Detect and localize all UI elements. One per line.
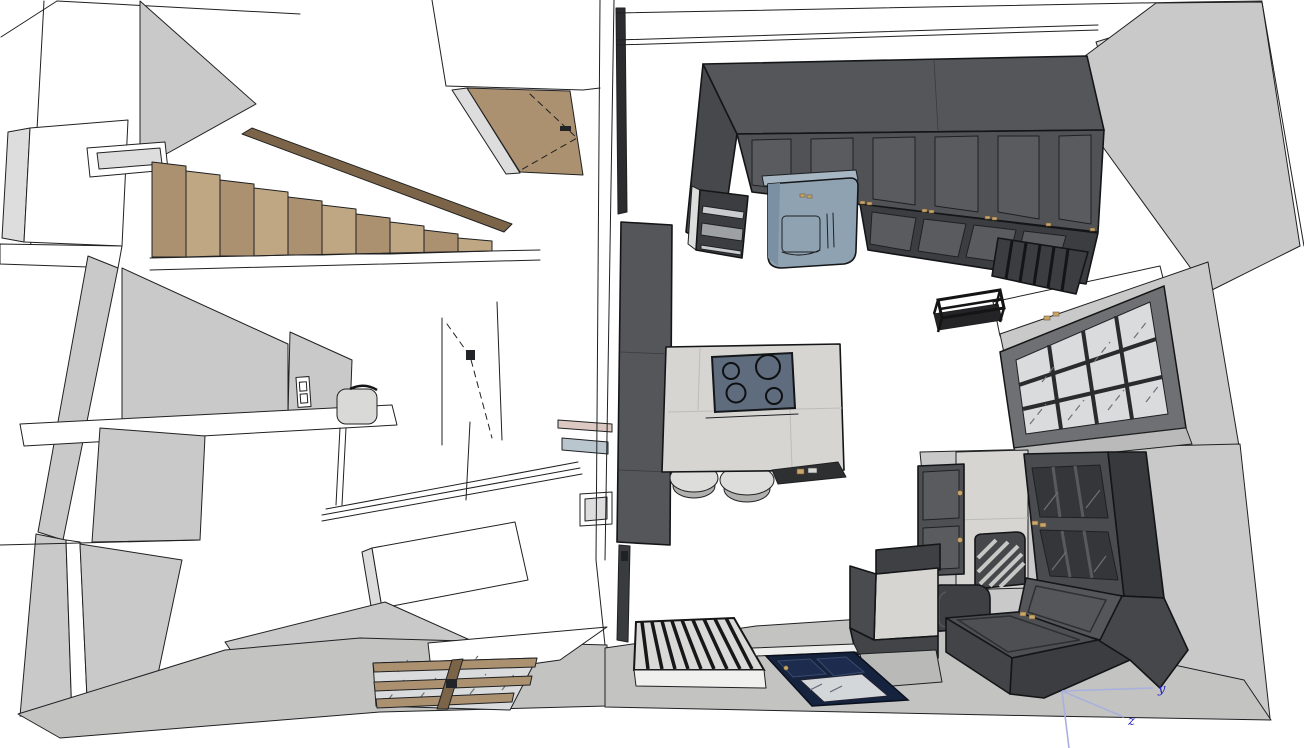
knob bbox=[958, 491, 963, 496]
ceiling-edge bbox=[57, 1, 300, 14]
closet-front bbox=[24, 120, 128, 246]
hinge bbox=[1032, 521, 1038, 525]
display-cabinet[interactable] bbox=[1024, 452, 1164, 598]
cabinet-side bbox=[850, 566, 876, 640]
stair-step bbox=[288, 197, 322, 255]
wall-face bbox=[92, 428, 205, 542]
door-panel bbox=[870, 212, 916, 251]
hinge bbox=[1029, 615, 1035, 619]
swing-dashes bbox=[447, 324, 492, 438]
cooktop-surface bbox=[712, 353, 795, 412]
divider-dark-edge bbox=[616, 8, 627, 214]
shelf-strip-pink bbox=[558, 420, 612, 432]
closet-volume[interactable] bbox=[0, 120, 128, 268]
light-switch[interactable] bbox=[296, 377, 311, 408]
door-jamb-lines bbox=[442, 302, 502, 445]
cooktop[interactable] bbox=[712, 353, 795, 412]
scene-svg[interactable]: y z bbox=[0, 0, 1304, 748]
shelf-strips[interactable] bbox=[558, 420, 612, 454]
stair-step bbox=[220, 180, 254, 256]
door-handle bbox=[560, 126, 571, 131]
stair-step bbox=[424, 230, 458, 253]
right-unit[interactable] bbox=[605, 1, 1304, 720]
left-unit[interactable] bbox=[0, 0, 627, 738]
wall-face bbox=[122, 268, 288, 420]
wall-upper bbox=[1085, 2, 1300, 292]
cabinet-top-face bbox=[703, 56, 1104, 134]
door-edge-handle bbox=[621, 551, 628, 561]
hinge bbox=[1040, 523, 1046, 527]
stone-top bbox=[874, 568, 938, 640]
white-cabinetry[interactable] bbox=[225, 422, 582, 668]
door-latch bbox=[466, 350, 475, 360]
toilet-cistern[interactable] bbox=[337, 386, 377, 424]
cistern-body bbox=[337, 389, 377, 424]
shelf-strip-blue bbox=[562, 438, 608, 454]
stair-step bbox=[254, 188, 288, 256]
model-viewport[interactable]: y z bbox=[0, 0, 1304, 748]
stair-step bbox=[186, 171, 220, 257]
counter-edges bbox=[322, 462, 582, 521]
door-frame-lines bbox=[432, 0, 600, 90]
knob bbox=[958, 538, 963, 543]
bench-apron bbox=[634, 670, 766, 688]
glass-door-upper bbox=[1032, 465, 1108, 518]
counter-top bbox=[372, 522, 528, 608]
oven-stack[interactable] bbox=[688, 186, 748, 258]
stair-step bbox=[356, 214, 390, 254]
window-hardware bbox=[1044, 316, 1050, 320]
door-panel bbox=[935, 136, 978, 212]
door-panel bbox=[1059, 135, 1091, 224]
open-door-plan[interactable] bbox=[432, 0, 600, 175]
wall-shelf[interactable] bbox=[934, 290, 1004, 332]
pantry-top bbox=[617, 222, 672, 545]
door-panel bbox=[873, 137, 915, 205]
kitchen-cabinets[interactable] bbox=[686, 56, 1104, 294]
door-knob bbox=[784, 666, 788, 670]
stair-wall-face bbox=[140, 1, 256, 163]
island-hardware bbox=[808, 468, 817, 473]
glass-door-lower bbox=[1040, 530, 1118, 580]
stair-step bbox=[458, 238, 492, 252]
stair-step bbox=[152, 162, 186, 257]
corner-edge bbox=[1, 1, 57, 37]
island-hardware bbox=[797, 469, 804, 474]
range-hood[interactable] bbox=[762, 170, 858, 268]
window-latch bbox=[446, 679, 457, 688]
cabinet-door bbox=[923, 470, 959, 520]
divider-edges bbox=[596, 0, 614, 645]
hinge bbox=[1020, 612, 1026, 616]
hood-shade bbox=[768, 183, 780, 266]
cabinet-seams bbox=[336, 422, 470, 505]
stair-step bbox=[322, 205, 356, 255]
stair-step bbox=[390, 222, 424, 254]
axis-y-label: y bbox=[1157, 682, 1166, 697]
door-panel bbox=[998, 136, 1039, 219]
window-hardware bbox=[1053, 312, 1059, 316]
axis-z-label: z bbox=[1127, 714, 1135, 729]
door-panel bbox=[918, 219, 966, 257]
kitchen-island[interactable] bbox=[662, 344, 846, 484]
interior-door-swing[interactable] bbox=[442, 302, 502, 445]
wall-strip bbox=[20, 534, 72, 720]
